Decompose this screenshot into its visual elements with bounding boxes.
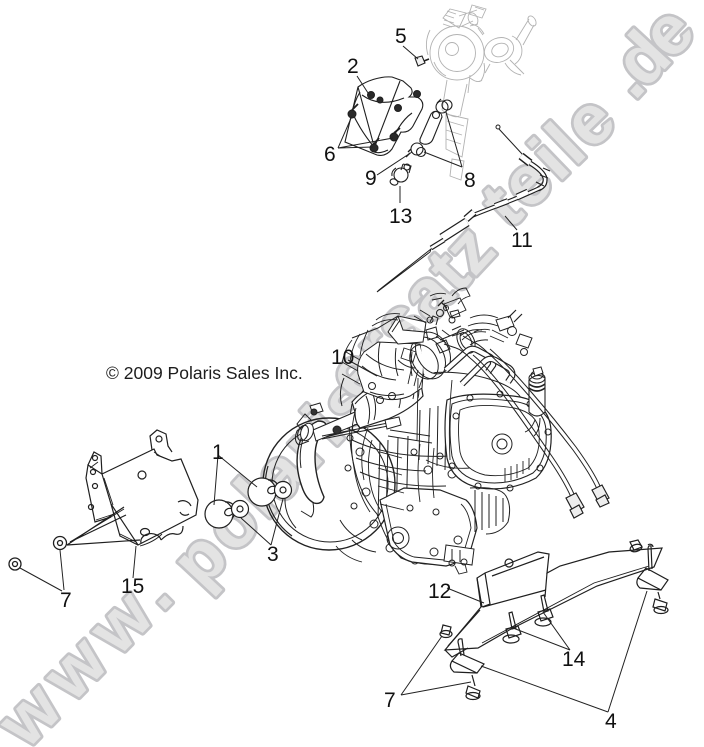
svg-text:8: 8 bbox=[464, 169, 476, 192]
svg-text:14: 14 bbox=[562, 648, 586, 671]
svg-text:2: 2 bbox=[347, 55, 359, 78]
svg-text:7: 7 bbox=[384, 689, 396, 712]
svg-text:© 2009 Polaris Sales Inc.: © 2009 Polaris Sales Inc. bbox=[106, 363, 303, 383]
svg-text:15: 15 bbox=[121, 575, 144, 598]
svg-text:11: 11 bbox=[511, 229, 533, 252]
svg-text:9: 9 bbox=[365, 167, 377, 190]
svg-text:10: 10 bbox=[331, 346, 354, 369]
svg-text:5: 5 bbox=[395, 25, 407, 48]
svg-text:4: 4 bbox=[605, 710, 617, 733]
svg-text:12: 12 bbox=[428, 580, 451, 603]
svg-text:7: 7 bbox=[60, 589, 72, 612]
svg-text:1: 1 bbox=[212, 441, 224, 464]
svg-text:13: 13 bbox=[389, 205, 412, 228]
svg-text:6: 6 bbox=[324, 143, 336, 166]
svg-text:3: 3 bbox=[267, 543, 279, 566]
